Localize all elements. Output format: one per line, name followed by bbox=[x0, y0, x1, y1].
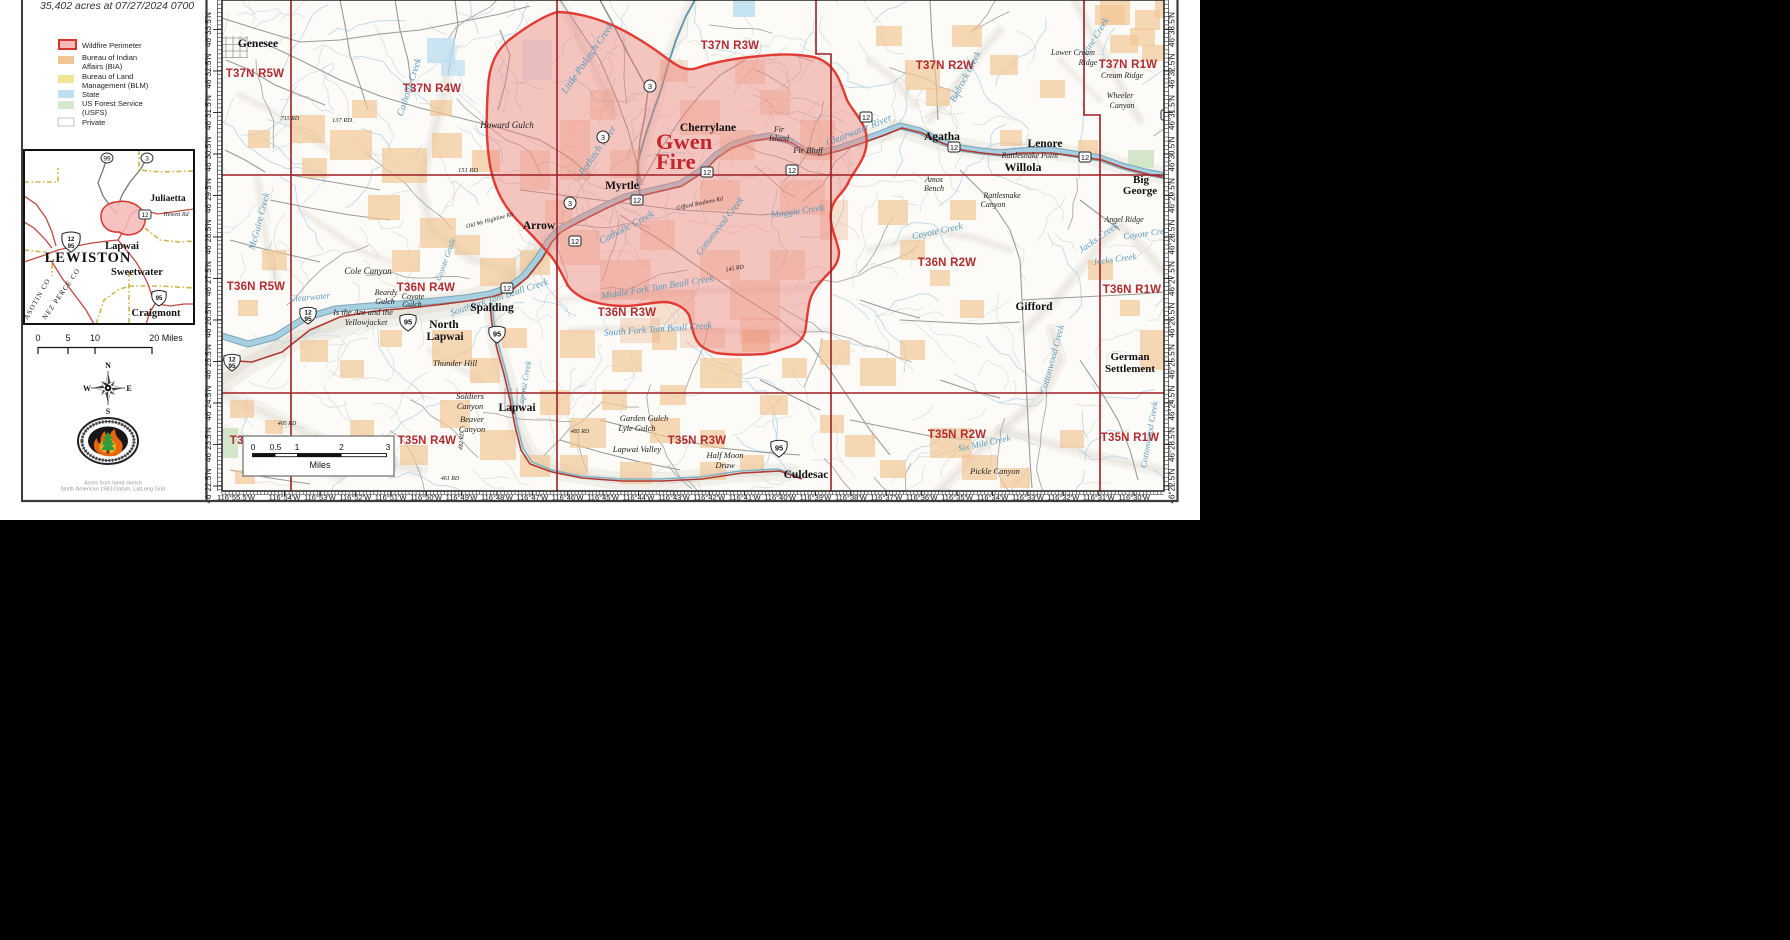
svg-text:S: S bbox=[106, 407, 111, 416]
svg-text:Gifford: Gifford bbox=[1015, 301, 1053, 313]
svg-text:Lapwai: Lapwai bbox=[498, 402, 536, 414]
svg-text:95: 95 bbox=[228, 363, 236, 370]
svg-text:12: 12 bbox=[571, 237, 579, 246]
svg-text:12: 12 bbox=[1081, 153, 1089, 162]
svg-text:95: 95 bbox=[775, 444, 783, 453]
svg-text:Garden Gulch: Garden Gulch bbox=[620, 413, 669, 423]
svg-text:Bench: Bench bbox=[924, 184, 944, 193]
svg-text:46°28.5′N: 46°28.5′N bbox=[1168, 219, 1177, 254]
svg-text:Yellowjacket: Yellowjacket bbox=[345, 317, 388, 327]
svg-text:0: 0 bbox=[251, 442, 256, 452]
svg-text:46°31.5′N: 46°31.5′N bbox=[1168, 95, 1177, 130]
svg-text:T36N R3W: T36N R3W bbox=[598, 307, 656, 319]
svg-text:State: State bbox=[82, 90, 100, 99]
svg-text:Canyon: Canyon bbox=[1110, 101, 1135, 110]
svg-text:3: 3 bbox=[145, 156, 149, 163]
svg-text:46°30.5′N: 46°30.5′N bbox=[1168, 136, 1177, 171]
svg-text:US Forest Service: US Forest Service bbox=[82, 99, 143, 108]
svg-text:2: 2 bbox=[339, 442, 344, 452]
svg-text:Pickle Canyon: Pickle Canyon bbox=[969, 466, 1020, 476]
svg-text:46°31.5′N: 46°31.5′N bbox=[204, 95, 213, 130]
svg-text:Craigmont: Craigmont bbox=[132, 308, 181, 319]
svg-text:46°28.5′N: 46°28.5′N bbox=[204, 219, 213, 254]
svg-text:(USFS): (USFS) bbox=[82, 108, 108, 117]
svg-text:Hewett Rd: Hewett Rd bbox=[162, 212, 189, 218]
svg-text:46°27.5′N: 46°27.5′N bbox=[1168, 261, 1177, 296]
svg-text:Wildfire Perimeter: Wildfire Perimeter bbox=[82, 41, 142, 50]
svg-text:3: 3 bbox=[648, 82, 652, 91]
svg-text:Myrtle: Myrtle bbox=[605, 180, 639, 192]
svg-text:T36N R1W: T36N R1W bbox=[1103, 284, 1161, 296]
svg-text:46°25.5′N: 46°25.5′N bbox=[1168, 344, 1177, 379]
svg-text:95: 95 bbox=[404, 318, 412, 327]
svg-text:46°30.5′N: 46°30.5′N bbox=[204, 136, 213, 171]
svg-text:Is the Ant and the: Is the Ant and the bbox=[332, 307, 393, 317]
svg-text:12: 12 bbox=[703, 168, 711, 177]
svg-text:46°29.5′N: 46°29.5′N bbox=[1168, 178, 1177, 213]
svg-text:Gulch: Gulch bbox=[402, 300, 422, 309]
svg-text:T35N R3W: T35N R3W bbox=[668, 435, 726, 447]
svg-text:46°25.5′N: 46°25.5′N bbox=[204, 344, 213, 379]
svg-text:T37N R5W: T37N R5W bbox=[226, 68, 284, 80]
svg-text:10: 10 bbox=[90, 333, 100, 343]
svg-text:Wheeler: Wheeler bbox=[1107, 91, 1135, 100]
svg-text:35,402 acres at 07/27/2024 070: 35,402 acres at 07/27/2024 0700 bbox=[40, 0, 194, 12]
svg-text:Gulch: Gulch bbox=[375, 297, 395, 306]
svg-text:1: 1 bbox=[295, 442, 300, 452]
svg-text:46°33.5′N: 46°33.5′N bbox=[1168, 12, 1177, 47]
svg-text:Angel Ridge: Angel Ridge bbox=[1103, 215, 1144, 224]
svg-text:20 Miles: 20 Miles bbox=[149, 333, 183, 343]
svg-text:Spalding: Spalding bbox=[470, 302, 514, 314]
svg-text:Cole Canyon: Cole Canyon bbox=[344, 266, 392, 276]
svg-text:Genesee: Genesee bbox=[238, 38, 278, 50]
svg-text:12: 12 bbox=[503, 284, 511, 293]
svg-text:T35N R4W: T35N R4W bbox=[398, 435, 456, 447]
svg-text:46°27.5′N: 46°27.5′N bbox=[204, 261, 213, 296]
svg-text:46°32.5′N: 46°32.5′N bbox=[1168, 53, 1177, 88]
svg-text:95: 95 bbox=[68, 244, 75, 250]
svg-text:Soldiers: Soldiers bbox=[456, 391, 485, 401]
svg-text:Lyle Gulch: Lyle Gulch bbox=[617, 423, 655, 433]
svg-text:Canyon: Canyon bbox=[981, 200, 1006, 209]
svg-text:Lenore: Lenore bbox=[1028, 138, 1063, 150]
svg-text:0: 0 bbox=[35, 333, 40, 343]
svg-text:95: 95 bbox=[304, 316, 312, 323]
svg-text:T36N R5W: T36N R5W bbox=[227, 281, 285, 293]
svg-text:T37N R3W: T37N R3W bbox=[701, 40, 759, 52]
svg-text:Rattlesnake: Rattlesnake bbox=[982, 191, 1021, 200]
svg-text:405 RD: 405 RD bbox=[278, 420, 297, 427]
svg-text:12: 12 bbox=[68, 237, 75, 243]
svg-text:46°26.5′N: 46°26.5′N bbox=[1168, 302, 1177, 337]
svg-text:Draw: Draw bbox=[714, 460, 735, 470]
svg-text:3: 3 bbox=[601, 133, 605, 142]
svg-text:Fir: Fir bbox=[773, 125, 785, 134]
svg-text:46°24.5′N: 46°24.5′N bbox=[204, 385, 213, 420]
svg-text:0.5: 0.5 bbox=[270, 442, 282, 452]
svg-text:Howard Gulch: Howard Gulch bbox=[479, 120, 534, 130]
svg-text:Arrow: Arrow bbox=[523, 220, 556, 232]
svg-text:95: 95 bbox=[493, 330, 501, 339]
svg-text:99: 99 bbox=[103, 156, 111, 163]
svg-text:Bureau of Land: Bureau of Land bbox=[82, 72, 133, 81]
svg-text:12: 12 bbox=[141, 212, 149, 219]
svg-text:46°23.5′N: 46°23.5′N bbox=[1168, 427, 1177, 462]
svg-text:461 RD: 461 RD bbox=[441, 475, 460, 482]
svg-text:E: E bbox=[126, 384, 131, 393]
svg-text:12: 12 bbox=[788, 166, 796, 175]
svg-text:46°23.5′N: 46°23.5′N bbox=[204, 427, 213, 462]
svg-text:46°24.5′N: 46°24.5′N bbox=[1168, 385, 1177, 420]
svg-text:Amos: Amos bbox=[924, 175, 943, 184]
svg-text:Management (BLM): Management (BLM) bbox=[82, 81, 149, 90]
svg-text:Beardy: Beardy bbox=[375, 288, 398, 297]
svg-text:Private: Private bbox=[82, 118, 105, 127]
svg-text:485 RD: 485 RD bbox=[571, 428, 590, 435]
svg-text:46°26.5′N: 46°26.5′N bbox=[204, 302, 213, 337]
svg-text:12: 12 bbox=[862, 113, 870, 122]
svg-text:Culdesac: Culdesac bbox=[784, 469, 829, 481]
svg-text:North: North bbox=[429, 319, 459, 331]
svg-text:715 RD: 715 RD bbox=[281, 116, 300, 122]
svg-text:3: 3 bbox=[568, 199, 572, 208]
svg-text:Rattlesnake Point: Rattlesnake Point bbox=[1001, 151, 1059, 160]
svg-text:Thunder Hill: Thunder Hill bbox=[433, 358, 478, 368]
svg-text:North American 1983 Datum, Lat: North American 1983 Datum, LatLong Grid bbox=[61, 487, 165, 493]
svg-text:Bureau of Indian: Bureau of Indian bbox=[82, 53, 137, 62]
svg-text:Willola: Willola bbox=[1004, 160, 1041, 174]
svg-text:3: 3 bbox=[386, 442, 391, 452]
svg-text:George: George bbox=[1123, 185, 1157, 197]
svg-text:46°22.5′N: 46°22.5′N bbox=[204, 468, 213, 503]
svg-text:Cream Ridge: Cream Ridge bbox=[1101, 71, 1144, 80]
svg-text:46°29.5′N: 46°29.5′N bbox=[204, 178, 213, 213]
svg-text:Half Moon: Half Moon bbox=[705, 450, 743, 460]
svg-text:German: German bbox=[1110, 351, 1149, 363]
svg-text:151 RD: 151 RD bbox=[458, 167, 478, 174]
svg-text:12: 12 bbox=[633, 196, 641, 205]
svg-text:LEWISTON: LEWISTON bbox=[45, 250, 132, 266]
svg-text:T36N R2W: T36N R2W bbox=[918, 257, 976, 269]
svg-text:Miles: Miles bbox=[309, 460, 331, 470]
svg-text:95: 95 bbox=[156, 296, 163, 302]
svg-text:W: W bbox=[83, 384, 91, 393]
svg-text:Lower Cream: Lower Cream bbox=[1050, 48, 1095, 57]
svg-text:46°33.5′N: 46°33.5′N bbox=[204, 12, 213, 47]
svg-text:46°32.5′N: 46°32.5′N bbox=[204, 53, 213, 88]
svg-text:Ridge: Ridge bbox=[1078, 58, 1098, 67]
svg-text:Affairs (BIA): Affairs (BIA) bbox=[82, 62, 123, 71]
svg-text:N: N bbox=[105, 361, 111, 370]
svg-text:137 RD: 137 RD bbox=[332, 117, 352, 124]
svg-text:5: 5 bbox=[65, 333, 70, 343]
svg-text:Lapwai: Lapwai bbox=[426, 331, 464, 343]
svg-text:46°22.5′N: 46°22.5′N bbox=[1168, 468, 1177, 503]
svg-text:Settlement: Settlement bbox=[1105, 363, 1155, 375]
svg-text:Canyon: Canyon bbox=[457, 401, 483, 411]
svg-text:Island: Island bbox=[768, 134, 790, 143]
svg-text:T37N R1W: T37N R1W bbox=[1099, 59, 1157, 71]
svg-text:Agatha: Agatha bbox=[924, 131, 960, 143]
svg-text:Juliaetta: Juliaetta bbox=[150, 194, 186, 204]
svg-text:Lapwai Valley: Lapwai Valley bbox=[612, 444, 662, 454]
svg-text:Beaver: Beaver bbox=[460, 414, 485, 424]
svg-text:Fire: Fire bbox=[656, 149, 696, 174]
svg-text:Sweetwater: Sweetwater bbox=[111, 267, 163, 278]
svg-text:12: 12 bbox=[950, 143, 958, 152]
svg-text:Fir Bluff: Fir Bluff bbox=[792, 145, 824, 155]
